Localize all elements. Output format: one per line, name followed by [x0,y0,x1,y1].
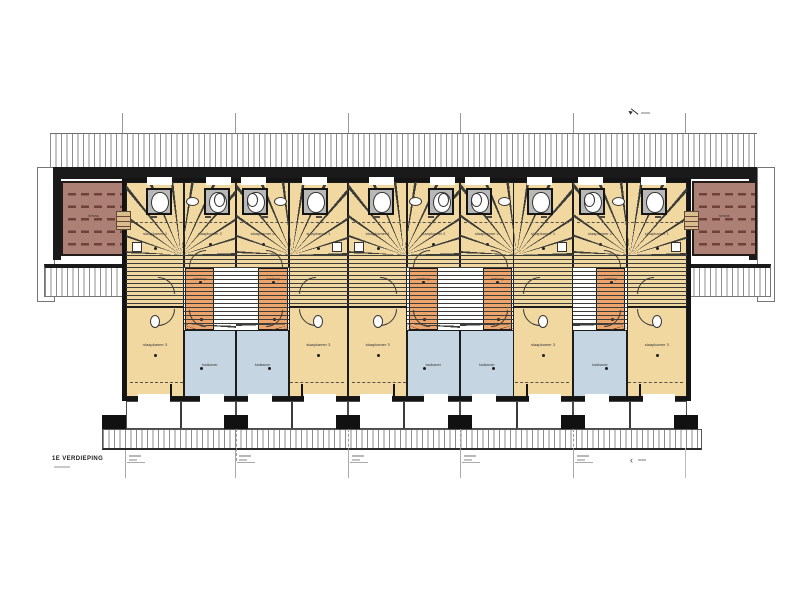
shower-partition [526,384,528,397]
roof-terrace-right: terras [692,181,757,256]
roof-window-glass [151,192,168,213]
window-opening [430,177,455,185]
balcony-post [516,402,518,428]
shower-partition [639,384,641,397]
dwelling-unit-1: slaapkamer 1 slaapkamer 2 overloop badka… [126,182,236,397]
window-opening [529,394,561,402]
shower-partition [170,384,172,397]
level-mark [262,216,268,218]
dwelling-unit-4: slaapkamer 1 slaapkamer 2 overloop badka… [460,182,573,397]
grid-line-stub [685,113,686,134]
level-mark [316,216,322,218]
headroom-dashed-line [352,222,456,223]
grid-line-extension [685,448,686,478]
room-bathroom: badkamer [407,330,460,397]
toilet [214,193,225,207]
floor-title-subline [54,466,70,468]
dimension-marker [235,450,236,478]
section-marker-bottom: ‹ [630,455,652,471]
window-opening [200,394,224,402]
washer [332,242,342,252]
balcony-post [180,402,182,428]
dwelling-unit-3: slaapkamer 1 slaapkamer 2 overloop badka… [348,182,460,397]
balcony-bay [236,401,348,429]
washer [557,242,567,252]
balcony-bay [573,401,687,429]
headroom-dashed-line [515,382,569,383]
window-opening [138,394,170,402]
room-bathroom: badkamer [573,330,627,397]
dwelling-unit-2: slaapkamer 1 slaapkamer 2 overloop badka… [236,182,348,397]
headroom-dashed-line [464,222,569,223]
level-mark [655,216,661,218]
headroom-dashed-line [240,222,344,223]
grid-dashed-line [236,429,238,461]
headroom-dashed-line [352,382,406,383]
level-mark [599,216,605,218]
terrace-door-threshold [684,211,699,230]
window-opening [147,177,172,185]
right-lower-gallery [687,264,771,297]
grid-line-stub [235,113,236,134]
balcony-bay [348,401,460,429]
headroom-dashed-line [628,382,683,383]
window-opening [578,177,603,185]
washbasin [409,197,422,206]
headroom-dashed-line [130,222,232,223]
dimension-marker [125,450,126,478]
balcony-post [629,402,631,428]
room-bathroom: badkamer [236,330,289,397]
left-end-wall [53,167,61,260]
grid-line-stub [573,113,574,134]
window-opening [424,394,448,402]
window-opening [465,177,490,185]
room-bathroom: badkamer [184,330,236,397]
headroom-dashed-line [290,382,344,383]
window-opening [304,394,336,402]
toilet [373,315,383,328]
floor-title: 1E VERDIEPING [52,456,103,462]
level-mark [486,216,492,218]
roof-window [146,188,172,215]
washer [671,242,681,252]
window-opening [472,394,496,402]
terrace-label: terras [694,213,755,218]
grid-line-stub [348,113,349,134]
terrace-label: terras [63,213,124,218]
balcony-post [291,402,293,428]
window-opening [360,394,392,402]
dimension-marker [348,450,349,478]
dimension-marker [573,450,574,478]
balcony-bay [460,401,573,429]
headroom-dashed-line [130,382,183,383]
roof-window-glass [532,192,549,213]
balcony-post [403,402,405,428]
shower-partition [393,384,395,397]
roof-window [302,188,328,215]
washer [354,242,364,252]
lower-walkway-band [102,429,702,450]
window-opening [643,394,675,402]
roof-window [368,188,394,215]
washbasin [612,197,625,206]
level-mark [428,216,434,218]
level-mark [541,216,547,218]
roof-window-glass [373,192,390,213]
left-lower-gallery [44,264,128,297]
grid-line-stub [460,113,461,134]
section-marker-top [628,110,652,122]
roof-window-glass [646,192,663,213]
window-opening [641,177,666,185]
dimension-marker [460,450,461,478]
roof-window [527,188,553,215]
level-mark [151,216,157,218]
grid-line-stub [122,113,123,134]
window-opening [206,177,231,185]
window-opening [585,394,609,402]
toilet [247,193,258,207]
window-opening [527,177,552,185]
balcony-bay [126,401,236,429]
window-opening [241,177,266,185]
window-opening [302,177,327,185]
dwelling-unit-5: slaapkamer 1 slaapkamer 2 overloop badka… [573,182,687,397]
top-gallery-band [50,133,757,169]
window-opening [369,177,394,185]
washer [132,242,142,252]
room-bathroom: badkamer [460,330,514,397]
window-opening [248,394,272,402]
shower-partition [301,384,303,397]
toilet [438,193,449,207]
level-mark [374,216,380,218]
floor-plan-canvas: terras terras slaapkamer 1 slaapkamer 2 … [0,0,800,600]
roof-window-glass [307,192,324,213]
terrace-door-threshold [116,211,131,230]
level-mark [205,216,211,218]
roof-window [641,188,667,215]
headroom-dashed-line [577,222,683,223]
washbasin [186,197,199,206]
